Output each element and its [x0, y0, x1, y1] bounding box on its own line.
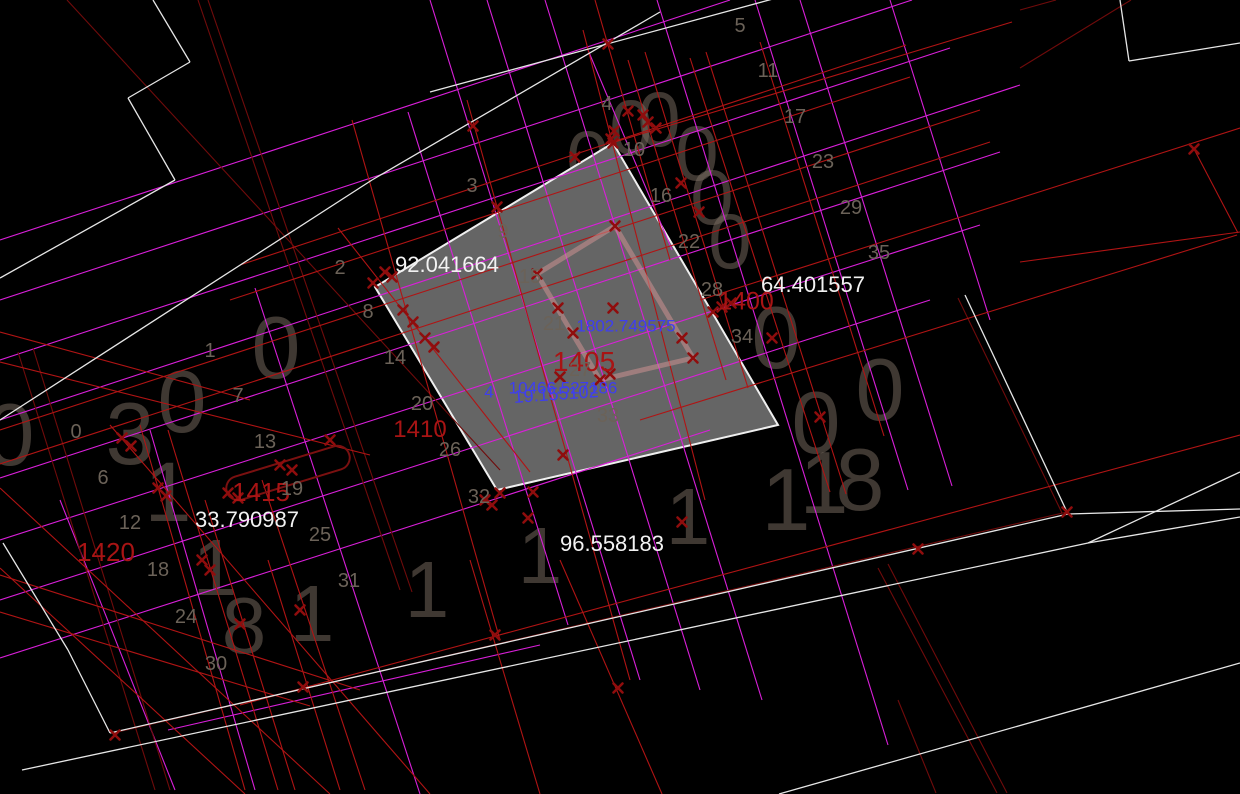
vertex-marker-x[interactable]: [369, 279, 378, 288]
boundary-line-white[interactable]: [1088, 472, 1240, 543]
vertex-marker-x[interactable]: [288, 466, 297, 475]
vertex-marker-x[interactable]: [678, 518, 687, 527]
boundary-line-white[interactable]: [0, 180, 175, 278]
vertex-marker-x[interactable]: [326, 436, 335, 445]
vertex-marker-x[interactable]: [677, 179, 686, 188]
vertex-marker-x[interactable]: [816, 413, 825, 422]
survey-line-red[interactable]: [1020, 232, 1240, 262]
survey-line-red[interactable]: [240, 435, 1240, 705]
boundary-line-white[interactable]: [1120, 0, 1129, 61]
vertex-marker-x[interactable]: [1190, 145, 1199, 154]
boundary-line-white[interactable]: [0, 180, 372, 420]
boundary-line-white[interactable]: [3, 543, 68, 650]
survey-line-red[interactable]: [470, 560, 540, 794]
vertex-marker-x[interactable]: [1063, 508, 1072, 517]
cad-viewport[interactable]: 000000000118111003118104 92.04166464.401…: [0, 0, 1240, 794]
grid-line-magenta[interactable]: [60, 500, 175, 790]
vertex-marker-x[interactable]: [198, 556, 207, 565]
vertex-marker-x[interactable]: [276, 461, 285, 470]
boundary-line-darkred[interactable]: [198, 0, 400, 590]
vertex-marker-x[interactable]: [695, 208, 704, 217]
survey-line-red[interactable]: [0, 488, 330, 794]
vertex-marker-x[interactable]: [768, 334, 777, 343]
survey-line-red[interactable]: [1194, 149, 1238, 233]
vertex-marker-x[interactable]: [524, 514, 533, 523]
boundary-line-white[interactable]: [1129, 43, 1240, 61]
vertex-marker-x[interactable]: [610, 127, 619, 136]
vertex-marker-x[interactable]: [727, 299, 736, 308]
boundary-line-white[interactable]: [153, 0, 190, 62]
vertex-marker-x[interactable]: [529, 488, 538, 497]
vertex-marker-x[interactable]: [614, 684, 623, 693]
boundary-line-darkred[interactable]: [1020, 0, 1056, 10]
survey-line-red[interactable]: [0, 575, 360, 690]
survey-line-red[interactable]: [700, 128, 1240, 300]
grid-line-magenta[interactable]: [0, 430, 710, 658]
survey-line-red[interactable]: [262, 480, 365, 790]
boundary-line-white[interactable]: [110, 514, 1068, 733]
boundary-line-white[interactable]: [965, 295, 1068, 514]
boundary-line-white[interactable]: [128, 62, 190, 98]
boundary-line-white[interactable]: [1088, 517, 1240, 543]
boundary-line-darkred[interactable]: [878, 568, 997, 793]
boundary-line-darkred[interactable]: [67, 0, 500, 470]
grid-line-magenta[interactable]: [755, 0, 908, 490]
boundary-line-darkred[interactable]: [1020, 0, 1131, 68]
survey-line-red[interactable]: [0, 332, 250, 400]
cad-canvas-svg[interactable]: [0, 0, 1240, 794]
vertex-marker-x[interactable]: [296, 606, 305, 615]
boundary-line-darkred[interactable]: [888, 564, 1007, 793]
survey-line-red[interactable]: [608, 22, 1012, 144]
boundary-line-darkred[interactable]: [958, 298, 1062, 513]
boundary-line-white[interactable]: [68, 650, 110, 733]
vertex-marker-x[interactable]: [118, 434, 127, 443]
survey-line-red[interactable]: [268, 560, 340, 790]
boundary-line-darkred[interactable]: [898, 700, 936, 793]
grid-line-magenta[interactable]: [255, 288, 420, 794]
boundary-line-white[interactable]: [779, 663, 1240, 794]
